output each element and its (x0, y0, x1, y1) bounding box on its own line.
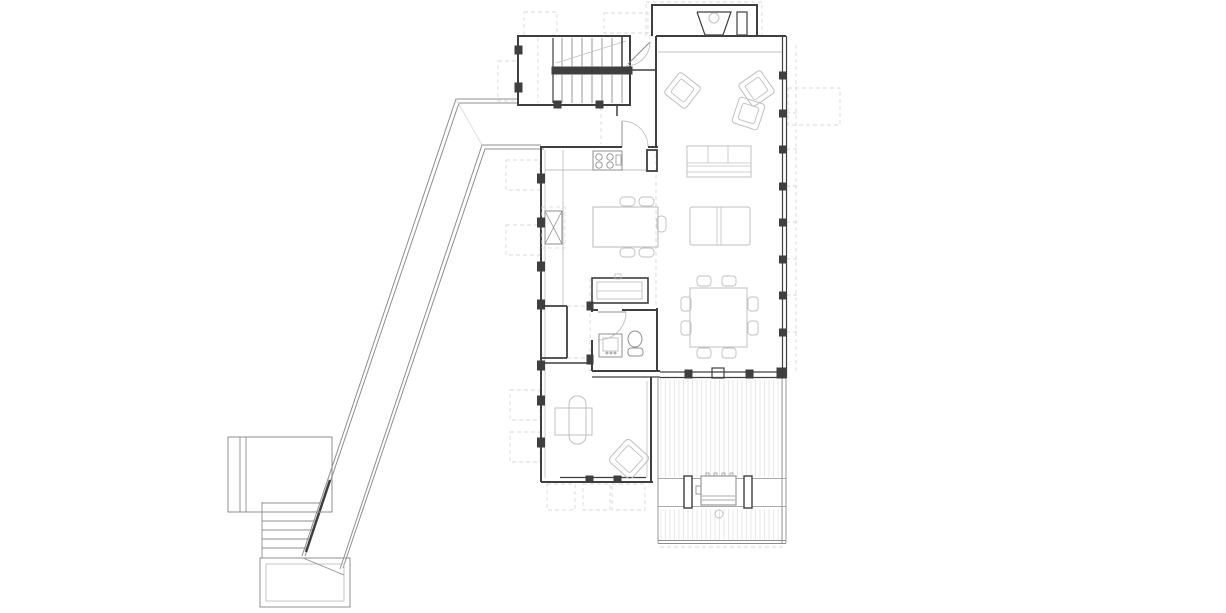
overhang-dashes-shape (498, 61, 518, 101)
mullion (614, 476, 621, 482)
great-room-furniture-shape (738, 103, 759, 124)
deck-boards-upper (661, 380, 783, 477)
mullion (780, 72, 787, 79)
great-room-shape (777, 368, 786, 378)
landing-platform (228, 437, 332, 512)
armchair (731, 96, 765, 130)
entry-vestibule (617, 36, 656, 147)
grill (701, 476, 736, 505)
great-room-shape (746, 370, 753, 378)
burner (596, 154, 602, 160)
mullion (538, 438, 545, 447)
overhang-dashes-shape (510, 390, 540, 420)
stair-treads-upper (562, 38, 622, 67)
stair-block (515, 36, 632, 108)
ramp-handrail (306, 480, 330, 552)
overhang-dashes (498, 2, 840, 547)
stair-block-shape (596, 101, 603, 108)
mullion (780, 110, 787, 117)
bathroom-shape (606, 352, 608, 354)
deck-post (684, 476, 692, 508)
mullion (586, 476, 593, 482)
grill-knob (696, 486, 701, 494)
deck-shape (715, 510, 723, 518)
overhang-dashes-shape (612, 484, 645, 510)
dining-chair (697, 276, 711, 286)
mullion (780, 329, 787, 336)
great-room-shape (685, 370, 692, 378)
walkway-ramp (302, 99, 544, 569)
burner (596, 162, 602, 168)
overhang-dashes-shape (604, 13, 648, 33)
dining-table (690, 288, 747, 347)
deck (658, 378, 786, 544)
mullion (780, 146, 787, 153)
dining-chair (697, 348, 711, 358)
overhang-dashes-shape (583, 484, 610, 510)
walkway-ramp-shape (305, 103, 518, 556)
walkway-ramp-shape (456, 99, 482, 145)
deck-door-post (712, 368, 724, 378)
office-shape (615, 445, 643, 473)
bathroom-shape (610, 352, 612, 354)
dining-chair (748, 297, 758, 311)
exterior-stairs (228, 437, 350, 607)
overhang-dashes-shape (506, 160, 540, 190)
mullion (538, 174, 545, 183)
desk-chair (569, 396, 586, 444)
dining-chair (722, 348, 736, 358)
great-room-furniture (664, 70, 776, 358)
deck-boards-lower (661, 509, 783, 540)
fireplace-shape (709, 13, 719, 23)
bathroom-shape (603, 338, 618, 351)
mullion (780, 292, 787, 299)
great-room-furniture-shape (671, 79, 695, 103)
great-room-furniture-shape (745, 77, 769, 101)
mullion (538, 218, 545, 227)
stair-block-shape (515, 83, 522, 92)
stool (639, 197, 654, 206)
kitchen-shape (616, 155, 621, 165)
stool (620, 248, 635, 257)
overhang-dashes-shape (788, 88, 840, 125)
flue (737, 12, 747, 35)
bathroom-shape (614, 352, 616, 354)
burner (607, 154, 613, 160)
burner (607, 162, 613, 168)
stool (639, 248, 654, 257)
pantry (541, 302, 593, 364)
ramp-inner-edge (340, 145, 541, 569)
stair-block-shape (515, 46, 522, 54)
entry-door-swing (622, 121, 648, 147)
ramp-outer-edge (302, 99, 518, 556)
floor-plan-page (0, 0, 1226, 613)
chair-pair (690, 207, 750, 245)
dining-chair (722, 276, 736, 286)
deck-post (744, 476, 752, 508)
overhang-dashes-shape (547, 484, 575, 510)
walkway-ramp-shape (343, 149, 544, 568)
bathroom-shape (597, 282, 642, 299)
fireplace (652, 5, 757, 36)
mullion (538, 396, 545, 405)
toilet (628, 331, 642, 347)
mullion (780, 219, 787, 226)
armchair (664, 72, 702, 110)
mullion (538, 262, 545, 271)
appliance (647, 150, 657, 171)
island (593, 207, 658, 247)
stair-landing-bar (552, 67, 632, 74)
roof-dash-box (524, 12, 557, 36)
bathroom-shape (628, 348, 643, 356)
dining-chair (748, 321, 758, 335)
mullion (780, 183, 787, 190)
lower-landing (260, 558, 350, 607)
stair-break-line (556, 41, 626, 63)
bathroom (592, 274, 660, 377)
chimney-outline (652, 5, 757, 36)
mullion (538, 300, 545, 309)
exterior-stairs-shape (303, 558, 344, 575)
mullion (538, 361, 545, 370)
overhang-dashes-shape (506, 225, 540, 255)
floor-plan-drawing (0, 0, 1226, 613)
armchair (608, 438, 650, 480)
stair-block-shape (554, 101, 561, 108)
stool (620, 197, 635, 206)
mullion (780, 256, 787, 263)
exterior-stairs-shape (266, 564, 344, 601)
stair-treads-lower (562, 74, 622, 103)
office (538, 361, 654, 482)
closet-door-leaf (628, 42, 650, 64)
overhang-dashes-shape (510, 432, 540, 462)
